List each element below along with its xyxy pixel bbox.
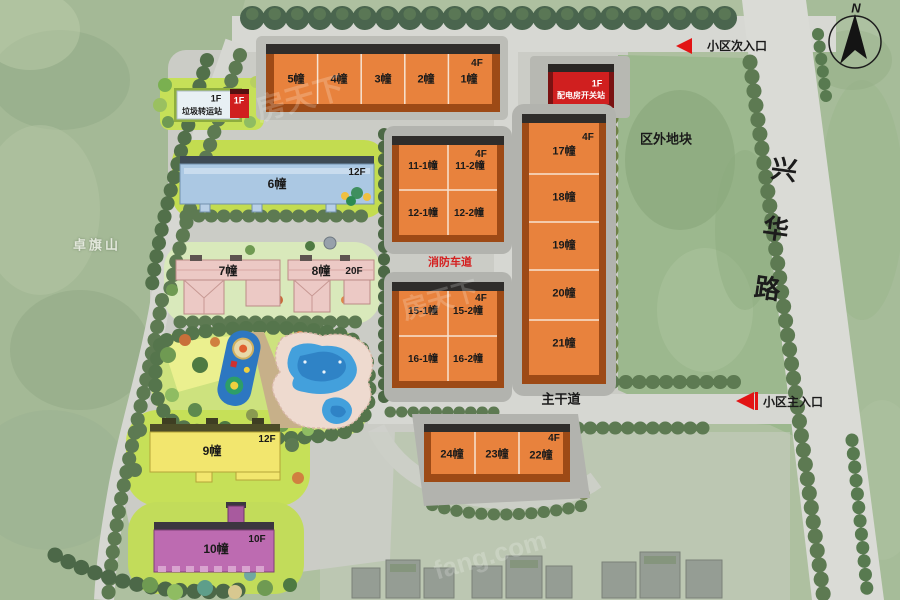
building-12-2-label: 12-2幢 (454, 209, 484, 219)
building-19-label: 19幢 (552, 241, 575, 252)
building-24-label: 24幢 (440, 450, 463, 461)
main-entrance-label: 小区主入口 (763, 396, 823, 408)
power-floor-tag: 1F (592, 80, 603, 89)
building-2-label: 2幢 (417, 75, 434, 86)
building-6-floor-tag: 12F (348, 168, 365, 178)
building-21-label: 21幢 (552, 339, 575, 350)
mountain-label: 卓旗山 (73, 239, 121, 252)
compass-north-label: N (851, 2, 860, 15)
building-23-label: 23幢 (485, 450, 508, 461)
building-6-label: 6幢 (268, 178, 287, 190)
building-8-floor-tag: 20F (345, 267, 362, 277)
secondary-entrance-label: 小区次入口 (707, 40, 767, 52)
swimming-pool (272, 332, 372, 428)
mid-a-floor-tag: 4F (475, 150, 487, 160)
fire-lane-label: 消防车道 (428, 258, 472, 269)
building-11-1-label: 11-1幢 (408, 162, 437, 172)
building-8-label: 8幢 (312, 265, 331, 277)
outside-plot-label: 区外地块 (640, 133, 692, 146)
building-7-label: 7幢 (219, 265, 238, 277)
row-bottom-floor-tag: 4F (548, 434, 560, 444)
main-road-label: 主干道 (541, 393, 580, 406)
building-18-label: 18幢 (552, 193, 575, 204)
garbage-floor-tag: 1F (211, 95, 222, 104)
building-3-label: 3幢 (374, 75, 391, 86)
building-12-1-label: 12-1幢 (408, 209, 438, 219)
building-9-floor-tag: 12F (258, 435, 275, 445)
garbage-annex-floor-tag: 1F (234, 97, 245, 106)
power-name-label: 配电房开关站 (557, 92, 605, 100)
building-1-label: 1幢 (460, 75, 477, 86)
building-16-2-label: 16-2幢 (453, 355, 483, 365)
row1-floor-tag: 4F (471, 59, 483, 69)
building-block-11-12 (384, 126, 512, 254)
building-9-label: 9幢 (203, 445, 222, 457)
col-right-floor-tag: 4F (582, 133, 594, 143)
building-10-label: 10幢 (203, 543, 228, 555)
building-17-label: 17幢 (552, 147, 575, 158)
building-20-label: 20幢 (552, 289, 575, 300)
garbage-name-label: 垃圾转运站 (182, 108, 222, 116)
building-16-1-label: 16-1幢 (408, 355, 438, 365)
site-plan: N 卓旗山 区外地块 兴华路 主干道 消防车道 小区次入口 小区主入口 5幢 4… (0, 0, 900, 600)
building-10-floor-tag: 10F (248, 535, 265, 545)
building-11-2-label: 11-2幢 (455, 162, 484, 172)
building-22-label: 22幢 (529, 451, 552, 462)
